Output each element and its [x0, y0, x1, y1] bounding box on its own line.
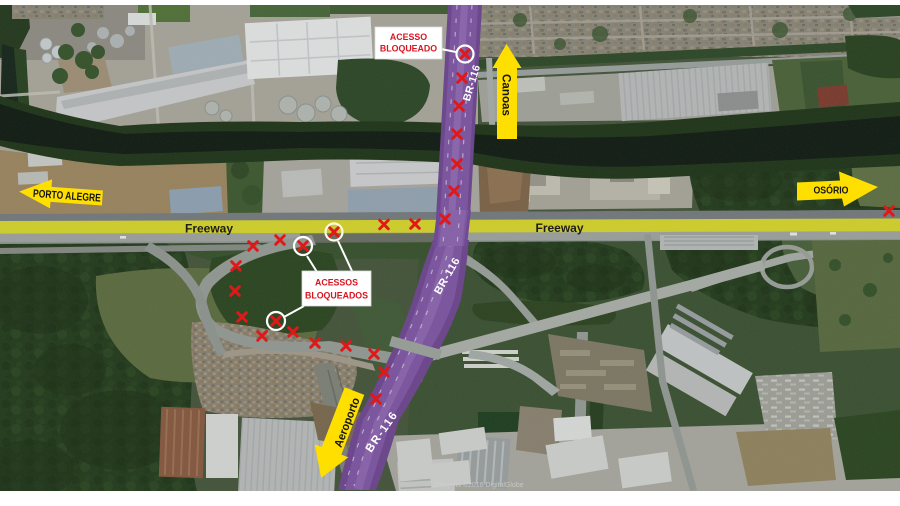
svg-text:Imagens ©2016 DigitalGlobe: Imagens ©2016 DigitalGlobe	[434, 481, 524, 489]
svg-text:Canoas: Canoas	[500, 74, 514, 116]
svg-text:ACESSOS: ACESSOS	[315, 278, 358, 288]
svg-text:ACESSO: ACESSO	[390, 32, 427, 42]
svg-text:BLOQUEADO: BLOQUEADO	[380, 44, 437, 54]
svg-text:OSÓRIO: OSÓRIO	[814, 184, 849, 197]
svg-text:BLOQUEADOS: BLOQUEADOS	[305, 291, 368, 301]
